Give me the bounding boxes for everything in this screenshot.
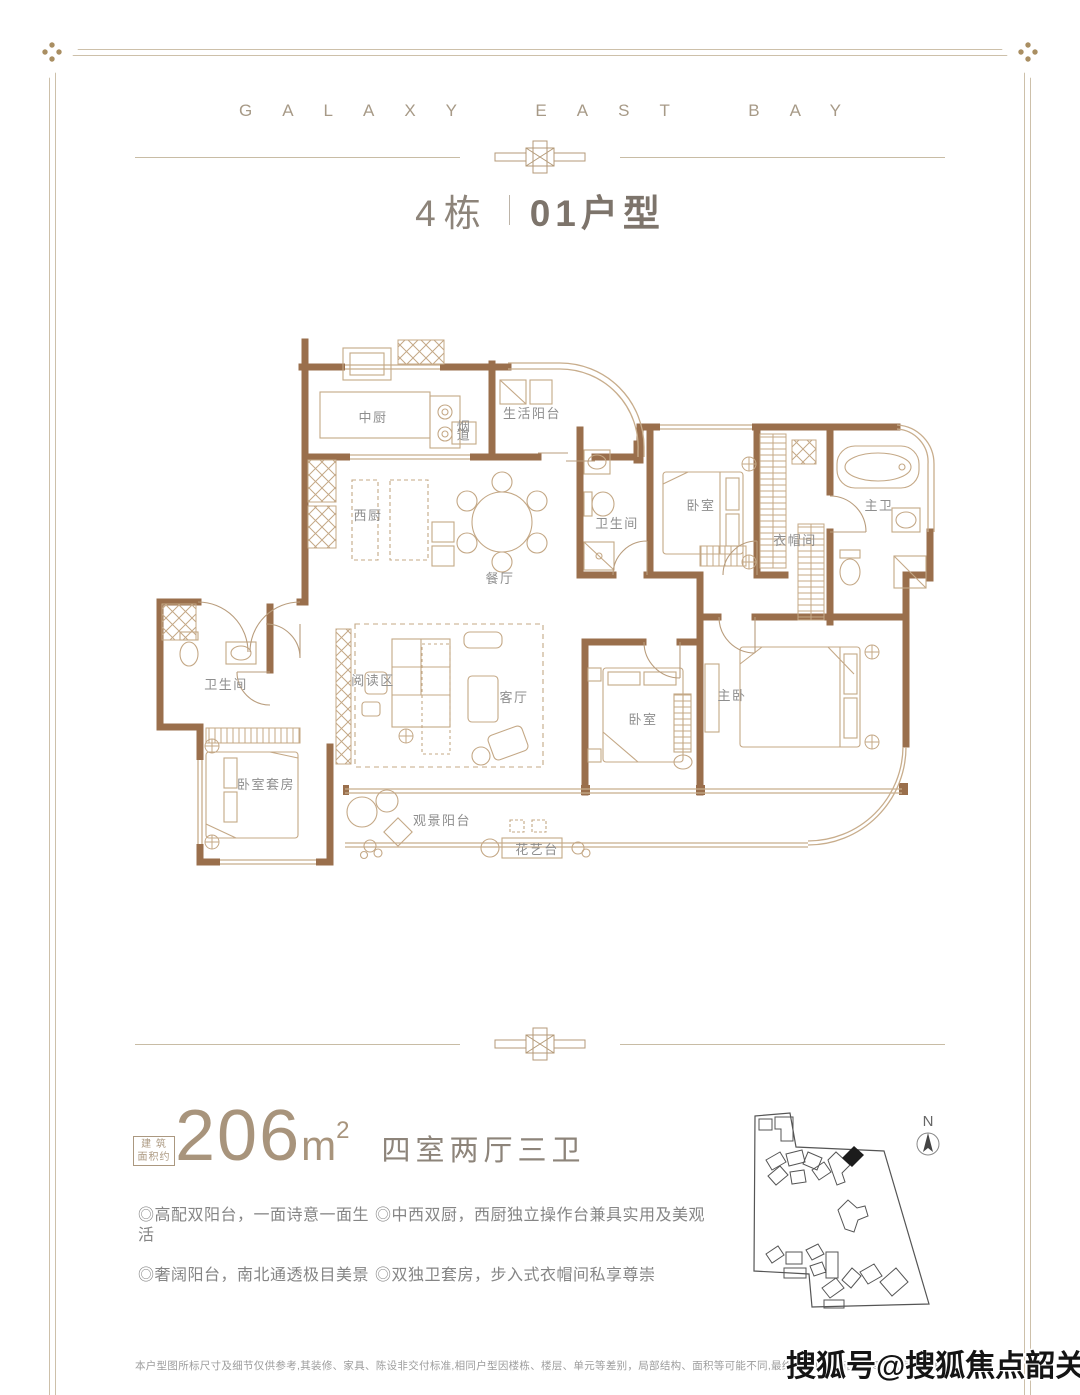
- unit-type: 01户型: [530, 183, 665, 237]
- area-prefix-line1: 建 筑: [141, 1139, 167, 1150]
- divider-ornament: [135, 139, 945, 175]
- feature-item: ◎中西双厨，西厨独立操作台兼具实用及美观: [375, 1206, 705, 1246]
- site-buildings: [759, 1117, 908, 1308]
- room-label: 花艺台: [515, 842, 559, 857]
- divider-ornament: [135, 1026, 945, 1062]
- room-label: 中厨: [358, 410, 387, 425]
- room-label: 卧室套房: [237, 777, 295, 792]
- area-unit-exponent: 2: [336, 1117, 349, 1144]
- room-label: 主卫: [864, 498, 893, 513]
- room-label: 卧室: [686, 498, 715, 513]
- floor-plan: 中厨生活阳台烟道西厨餐厅卫生间卧室衣帽间主卫卫生间阅读区客厅卧室套房卧室主卧观景…: [140, 332, 950, 904]
- room-label: 餐厅: [485, 571, 514, 586]
- plan-title: 4栋 01户型: [0, 183, 1080, 237]
- room-label: 生活阳台: [503, 406, 561, 421]
- brand-wordmark: GALAXY EAST BAY: [0, 101, 1080, 121]
- feature-list: ◎高配双阳台，一面诗意一面生活 ◎中西双厨，西厨独立操作台兼具实用及美观 ◎奢阔…: [138, 1206, 705, 1286]
- room-label: 观景阳台: [413, 813, 471, 828]
- room-label: 卧室: [628, 712, 657, 727]
- room-label: 阅读区: [351, 673, 395, 688]
- room-label: 卫生间: [204, 677, 248, 692]
- svg-text:N: N: [923, 1113, 934, 1130]
- feature-item: ◎高配双阳台，一面诗意一面生活: [138, 1206, 375, 1246]
- room-label: 主卧: [717, 688, 746, 703]
- area-value: 206: [175, 1096, 301, 1176]
- area-summary: 建 筑 面积约 206m2四室两厅三卫: [133, 1100, 586, 1172]
- building-number: 4栋: [415, 183, 489, 237]
- divider-center-icon: [460, 1027, 620, 1061]
- north-arrow-icon: N: [917, 1113, 939, 1155]
- corner-ornament-icon: [1015, 39, 1041, 65]
- title-separator: [509, 195, 510, 225]
- watermark-text: 搜狐号@搜狐焦点韶关站: [786, 1341, 1080, 1385]
- corner-ornament-icon: [39, 39, 65, 65]
- room-label: 西厨: [353, 508, 382, 523]
- area-prefix-box: 建 筑 面积约: [133, 1136, 175, 1166]
- flyer-page: GALAXY EAST BAY 4栋 01户型: [0, 0, 1080, 1395]
- divider-center-icon: [460, 140, 620, 174]
- feature-item: ◎奢阔阳台，南北通透极目美景: [138, 1266, 375, 1286]
- room-label: 客厅: [499, 690, 528, 705]
- room-layout-text: 四室两厅三卫: [382, 1135, 586, 1167]
- room-label: 烟道: [457, 419, 472, 443]
- area-unit: m: [301, 1122, 336, 1169]
- area-prefix-line2: 面积约: [138, 1152, 171, 1163]
- site-plan: N: [738, 1102, 963, 1317]
- room-label: 衣帽间: [773, 533, 817, 548]
- feature-item: ◎双独卫套房，步入式衣帽间私享尊崇: [375, 1266, 705, 1286]
- room-label: 卫生间: [595, 516, 639, 531]
